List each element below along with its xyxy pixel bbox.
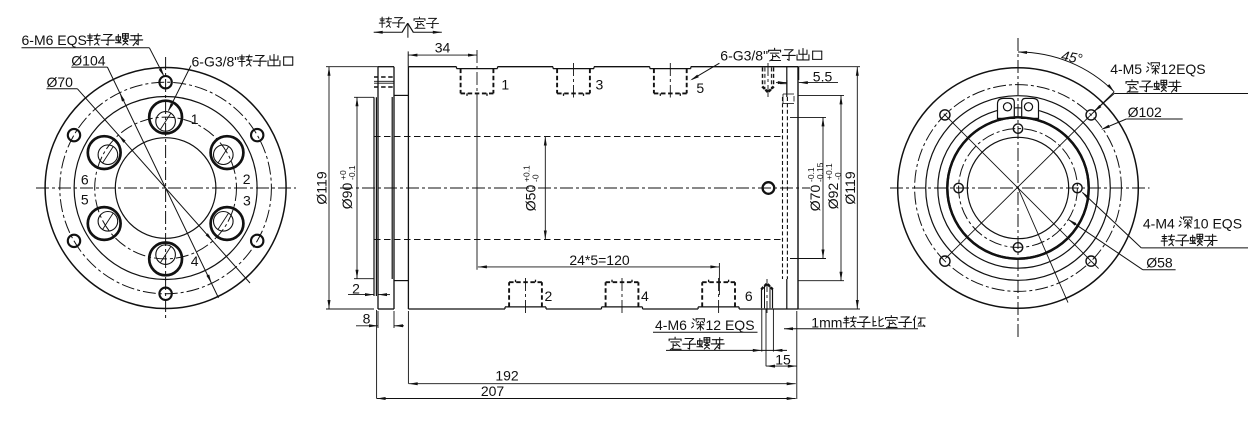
svg-text:Ø50: Ø50 — [523, 185, 539, 212]
svg-text:-0: -0 — [531, 174, 541, 182]
svg-text:1: 1 — [191, 111, 199, 127]
svg-text:5: 5 — [696, 80, 704, 96]
svg-text:Ø119: Ø119 — [842, 171, 858, 204]
svg-text:8: 8 — [363, 311, 371, 327]
svg-text:207: 207 — [481, 383, 505, 399]
svg-text:Ø104: Ø104 — [71, 52, 105, 68]
svg-text:Ø90: Ø90 — [339, 183, 355, 210]
svg-text:6: 6 — [745, 288, 753, 304]
svg-text:Ø119: Ø119 — [314, 171, 330, 204]
svg-text:4-M4: 4-M4 — [1143, 215, 1175, 231]
svg-text:Ø70: Ø70 — [807, 185, 823, 212]
svg-text:2: 2 — [545, 288, 553, 304]
svg-text:1: 1 — [501, 77, 509, 93]
svg-text:2: 2 — [243, 171, 251, 187]
svg-text:Ø58: Ø58 — [1146, 255, 1173, 271]
svg-text:34: 34 — [435, 40, 451, 56]
svg-text:-0.1: -0.1 — [347, 165, 357, 180]
svg-text:12 EQS: 12 EQS — [706, 317, 755, 333]
svg-text:6: 6 — [81, 172, 89, 188]
svg-text:5.5: 5.5 — [813, 68, 833, 84]
svg-text:6-G3/8": 6-G3/8" — [720, 48, 768, 64]
svg-text:5: 5 — [81, 192, 89, 208]
svg-text:10 EQS: 10 EQS — [1193, 215, 1242, 231]
svg-text:12EQS: 12EQS — [1161, 61, 1206, 77]
svg-text:Ø92: Ø92 — [825, 183, 841, 210]
svg-text:24*5=120: 24*5=120 — [569, 252, 630, 268]
svg-text:6-G3/8": 6-G3/8" — [192, 53, 240, 69]
svg-text:15: 15 — [775, 351, 791, 367]
svg-text:192: 192 — [495, 368, 519, 384]
svg-text:Ø70: Ø70 — [47, 74, 74, 90]
svg-text:2: 2 — [352, 280, 360, 296]
svg-text:4: 4 — [641, 288, 649, 304]
svg-text:4-M5: 4-M5 — [1110, 61, 1142, 77]
svg-text:4-M6: 4-M6 — [655, 317, 687, 333]
svg-text:1mm: 1mm — [811, 314, 842, 330]
svg-text:6-M6 EQS: 6-M6 EQS — [22, 32, 87, 48]
svg-text:3: 3 — [596, 77, 604, 93]
svg-text:3: 3 — [243, 193, 251, 209]
svg-text:Ø102: Ø102 — [1128, 104, 1162, 120]
